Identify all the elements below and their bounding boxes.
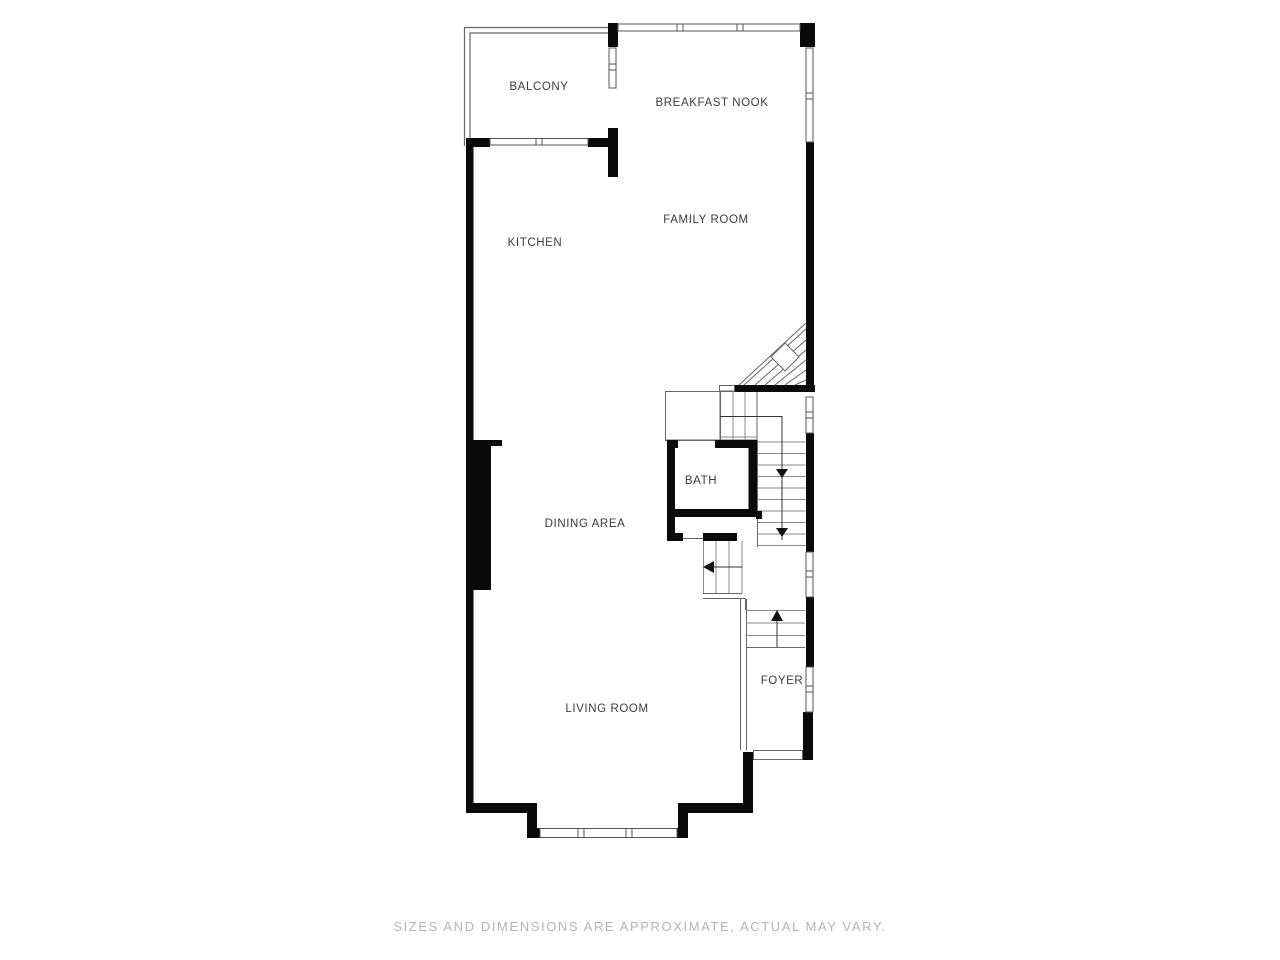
window-living-bay	[540, 829, 677, 838]
window-right-middle	[806, 552, 813, 597]
stair-walk-lines	[709, 417, 782, 648]
room-label-foyer: FOYER	[761, 675, 804, 687]
stair-direction-arrow-left-icon	[703, 561, 714, 573]
entry-threshold	[754, 751, 803, 760]
stair-direction-arrow-up-icon	[771, 610, 783, 621]
floor-plan-drawing	[0, 0, 1280, 960]
room-label-bath: BATH	[685, 475, 717, 487]
foyer-left-wall	[741, 599, 747, 750]
floor-plan-page: BALCONY BREAKFAST NOOK FAMILY ROOM KITCH…	[0, 0, 1280, 960]
window-breakfast-top	[618, 24, 800, 31]
landing-stair-treads	[703, 541, 746, 610]
room-label-kitchen: KITCHEN	[508, 237, 563, 249]
window-right-foyer	[806, 667, 813, 712]
stair-door-opening	[720, 386, 735, 392]
upper-stair-flight	[721, 392, 758, 441]
room-label-family-room: FAMILY ROOM	[663, 214, 748, 226]
window-kitchen-north	[490, 139, 588, 146]
disclaimer-text: SIZES AND DIMENSIONS ARE APPROXIMATE, AC…	[0, 919, 1280, 934]
window-breakfast-right	[806, 48, 813, 142]
room-label-breakfast-nook: BREAKFAST NOOK	[656, 97, 769, 109]
window-right-upper	[806, 397, 813, 433]
room-label-dining-area: DINING AREA	[545, 518, 626, 530]
windows	[490, 24, 813, 838]
room-label-balcony: BALCONY	[509, 81, 568, 93]
winder-stairs	[739, 323, 806, 385]
room-label-living-room: LIVING ROOM	[565, 703, 648, 715]
window-balcony-divider	[609, 48, 616, 88]
